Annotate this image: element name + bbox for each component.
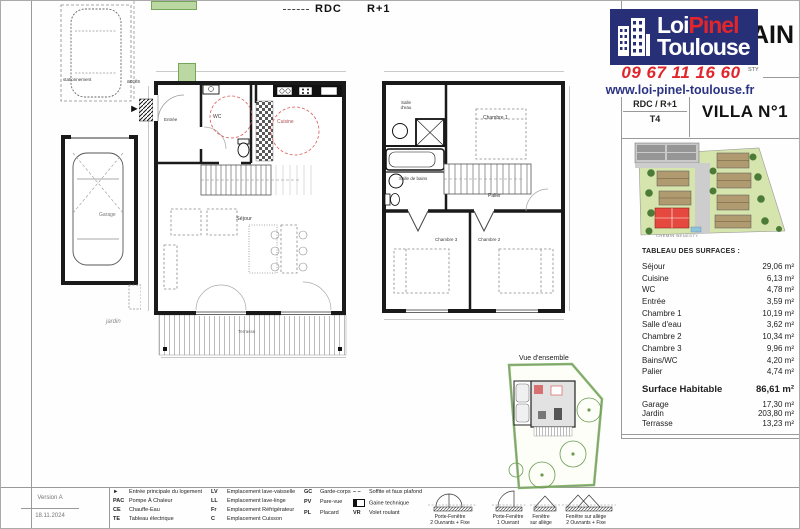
label-sejour: Séjour — [236, 216, 252, 222]
outer-walls — [384, 83, 563, 311]
entrance-arrow-icon: ► — [129, 103, 140, 115]
table-row: Garage17,30 m² — [642, 400, 794, 409]
table-row: Cuisine6,13 m² — [642, 274, 794, 286]
legend-entry: PLPlacard — [304, 510, 339, 516]
legend-entry: VRVolet roulant — [353, 510, 400, 516]
plan-sheet: ► accès stationnement Garage jardin RDC … — [0, 0, 800, 529]
parking-spot — [61, 1, 134, 101]
table-row: Palier4,74 m² — [642, 367, 794, 379]
table-row: Terrasse13,23 m² — [642, 419, 794, 428]
siteplan-street-label: CHEMIN BENESTY — [656, 234, 699, 238]
table-row: Salle d'eau3,62 m² — [642, 320, 794, 332]
surfaces-title: TABLEAU DES SURFACES : — [642, 248, 794, 255]
legend-entry: LVEmplacement lave-vaisselle — [211, 489, 295, 495]
sink-1 — [393, 124, 408, 139]
soffite-icon: – – — [353, 489, 369, 495]
fenetre-sur-allege-2-ouvrants-icon — [562, 495, 616, 511]
label-salle-de-bains: Salle de bains — [399, 177, 427, 182]
hedge-strip — [151, 1, 197, 10]
table-row: Bains/WC4,20 m² — [642, 356, 794, 368]
siteplan-collective-building — [635, 143, 699, 163]
version-label: Version A — [19, 495, 81, 501]
label-cuisine: Cuisine — [277, 120, 294, 126]
rdc-floorplan — [139, 69, 349, 361]
porte-fenetre-2-ouvrants-icon — [428, 494, 476, 511]
label-r1: R+1 — [367, 3, 391, 15]
website-link: www.loi-pinel-toulouse.fr — [595, 83, 765, 97]
label-jardin: jardin — [106, 319, 121, 326]
panel-bottom-line-2 — [621, 438, 800, 439]
garage-parking-plan — [29, 1, 141, 496]
table-row: Séjour29,06 m² — [642, 262, 794, 274]
legend-entry: Gaine technique — [353, 499, 409, 507]
label-entree: Entrée — [164, 118, 177, 123]
label-wc: WC — [213, 115, 221, 121]
label-chambre3: Chambre 3 — [435, 238, 457, 243]
header-cell-line — [623, 111, 687, 112]
window-label: Fenêtre sur allège2 Ouvrants + Fixe — [557, 514, 615, 526]
window-symbols — [426, 489, 621, 517]
brand-logo: LoiPinel Toulouse — [610, 9, 758, 65]
fenetre-sur-allege-icon — [530, 496, 560, 511]
label-garage: Garage — [99, 213, 116, 219]
version-line — [21, 508, 79, 509]
logo-toulouse: Toulouse — [657, 37, 750, 59]
overview-plan — [494, 353, 634, 505]
legend-entry: CEmplacement Cuisson — [211, 516, 282, 522]
header-bottom-line — [621, 138, 800, 139]
garage-room — [63, 133, 136, 283]
legend-entry: LLEmplacement lave-linge — [211, 498, 286, 504]
window-label: Fenêtresur allège — [525, 514, 557, 526]
label-rdc: RDC — [315, 3, 342, 15]
toilet — [385, 194, 400, 206]
label-acces: accès — [127, 80, 140, 86]
gaine-technique-icon — [353, 499, 365, 507]
kitchen-tiles — [256, 101, 273, 161]
surface-habitable-row: Surface Habitable86,61 m² — [642, 384, 794, 400]
legend-entry: PACPompe À Chaleur — [113, 498, 172, 504]
entrance-arrow-icon: ► — [113, 489, 129, 495]
phone-number: 09 67 11 16 60 — [604, 63, 758, 83]
siteplan-thumbnail — [627, 141, 800, 241]
legend-entry: FrEmplacement Réfrigérateur — [211, 507, 294, 513]
legend-entry: ►Entrée principale du logement — [113, 489, 202, 495]
label-chambre2: Chambre 2 — [478, 238, 500, 243]
type-label: T4 — [621, 114, 689, 124]
address-underline — [763, 77, 800, 78]
table-row: WC4,78 m² — [642, 285, 794, 297]
villa-title: VILLA N°1 — [691, 102, 799, 122]
r1-floorplan — [374, 69, 574, 361]
stairs — [444, 164, 531, 194]
overview-garage — [514, 381, 531, 425]
label-salle-deau: Salle d'eau — [395, 101, 417, 111]
table-row: Jardin203,80 m² — [642, 409, 794, 418]
terrace — [159, 315, 346, 355]
shower — [416, 119, 444, 146]
table-row: Entrée3,59 m² — [642, 297, 794, 309]
level-label: RDC / R+1 — [621, 99, 689, 109]
legend-entry: TETableau électrique — [113, 516, 174, 522]
date-label: 18.11.2024 — [19, 513, 81, 519]
overview-house — [531, 381, 575, 436]
legend-entry: PVPare-vue — [304, 499, 342, 505]
label-palier: Palier — [488, 194, 501, 200]
table-row: Chambre 210,34 m² — [642, 332, 794, 344]
kitchen-counter — [273, 85, 342, 97]
table-row: Chambre 110,19 m² — [642, 309, 794, 321]
label-stationnement: stationnement — [63, 78, 91, 83]
label-terrasse: Terrasse — [238, 330, 255, 335]
logo-text: LoiPinel Toulouse — [657, 15, 750, 59]
label-chambre1: Chambre 1 — [483, 116, 508, 122]
bathtub — [386, 149, 444, 170]
porte-fenetre-1-ouvrant-icon — [492, 491, 526, 511]
buildings-icon — [614, 14, 652, 60]
legend-entry: CEChauffe-Eau — [113, 507, 160, 513]
boundary-dash — [283, 9, 309, 10]
entry-hatch — [139, 99, 153, 121]
table-row: Chambre 39,96 m² — [642, 344, 794, 356]
header-cell-divider — [689, 97, 690, 137]
surfaces-table: TABLEAU DES SURFACES : Séjour29,06 m² Cu… — [642, 248, 794, 428]
legend-entry: – –Soffite et faux plafond — [353, 489, 422, 495]
legend-entry: GCGarde-corps — [304, 489, 351, 495]
panel-bottom-line-1 — [621, 434, 800, 435]
window-label: Porte-Fenêtre2 Ouvrants + Fixe — [421, 514, 479, 526]
